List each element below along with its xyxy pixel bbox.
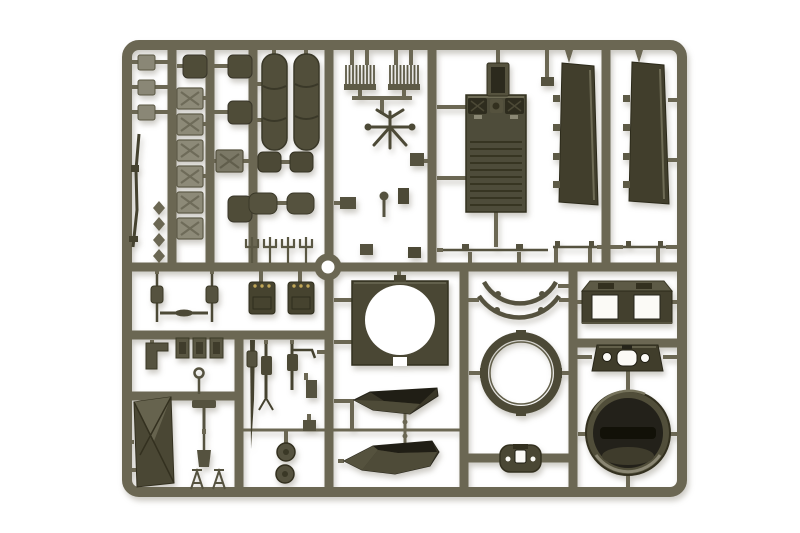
turret-ring-part: [484, 336, 558, 410]
fender-gate: [635, 50, 643, 63]
arc-nub: [494, 307, 500, 313]
runner-knob: [403, 434, 408, 439]
fender-tab: [623, 153, 630, 160]
axe-head: [192, 400, 216, 408]
clip-part: [153, 201, 165, 215]
pin-part: [195, 369, 204, 378]
rod-bracket: [516, 244, 523, 251]
fender-tab: [553, 181, 560, 188]
radio-contact: [299, 284, 302, 287]
comb-grille-teeth: [390, 65, 418, 85]
duffel-bag: [294, 54, 319, 150]
radio-contact: [292, 284, 295, 287]
arc-nub: [495, 291, 501, 297]
ring-tab: [516, 330, 526, 337]
radio-contact: [306, 284, 309, 287]
fender-tab: [553, 153, 560, 160]
stowage-bag: [183, 55, 207, 78]
tool-grip: [151, 286, 163, 303]
arc-nub: [539, 291, 545, 297]
arc-nub: [538, 307, 544, 313]
small-box-part: [138, 105, 155, 120]
mount-notch: [513, 444, 528, 449]
stowage-bag: [228, 55, 252, 78]
fork-tool: [299, 237, 313, 263]
deck-intake-face: [491, 67, 505, 93]
plate-hole: [365, 285, 435, 355]
small-part: [398, 188, 409, 204]
fender-tab: [553, 95, 560, 102]
fork-tool: [281, 237, 295, 263]
rifle-part: [133, 134, 139, 247]
mantlet-slot: [617, 350, 637, 366]
ring-tab: [480, 368, 487, 378]
radio-contact: [267, 284, 270, 287]
mantlet-hole: [641, 354, 650, 363]
small-part: [541, 77, 554, 86]
mount-hole-small: [531, 457, 536, 462]
clip-part: [153, 217, 165, 231]
fender-gate: [565, 50, 573, 63]
rod-bracket: [658, 241, 663, 248]
cupola-band: [600, 427, 656, 439]
fender-tab: [623, 124, 630, 131]
deck-tab: [510, 115, 518, 119]
cupola-floor: [602, 447, 654, 465]
small-part-face: [179, 342, 186, 354]
plate-notch: [393, 357, 407, 366]
sprue-hub-ring: [318, 257, 338, 277]
fender-tab: [553, 124, 560, 131]
sprue-svg: [0, 0, 800, 533]
deck-tab: [474, 115, 482, 119]
mount-hole-small: [506, 457, 511, 462]
wheel-hub: [283, 449, 289, 455]
pouch-part: [258, 152, 281, 172]
lamp-part: [380, 192, 389, 201]
stowage-bag: [228, 196, 252, 222]
radio-contact: [260, 284, 263, 287]
small-box-part: [138, 55, 155, 70]
ring-tab: [555, 368, 562, 378]
rifle-magazine: [131, 165, 139, 172]
stand-part: [213, 470, 225, 489]
pouch-part: [287, 193, 314, 214]
stowage-bag: [228, 101, 252, 124]
plate-tab: [394, 275, 406, 282]
bayonet-grip: [247, 351, 257, 367]
mantlet-notch: [622, 345, 632, 349]
mantlet-hole: [603, 353, 612, 362]
fender-tab: [623, 181, 630, 188]
tool-grip: [206, 286, 218, 303]
comb-grille-base: [388, 84, 420, 90]
sprue-parts-layer: [127, 45, 682, 492]
comb-grille-teeth: [346, 65, 374, 85]
shovel-blade: [197, 450, 211, 467]
small-part-face: [213, 342, 220, 354]
spring-arc: [479, 296, 559, 317]
sprue-photo: [0, 0, 800, 533]
gun-receiver: [261, 356, 272, 375]
gun-receiver: [287, 354, 298, 371]
mount-hole: [515, 450, 526, 463]
rod-bracket: [555, 241, 560, 248]
small-part: [410, 153, 424, 166]
duffel-bag: [262, 54, 287, 150]
ring-groove: [490, 342, 552, 404]
pouch-part: [249, 193, 277, 214]
ring-tab: [516, 409, 526, 416]
fork-tool: [263, 237, 277, 263]
hull-box-top: [582, 281, 672, 291]
small-part: [306, 380, 317, 398]
jack-foot: [409, 124, 416, 131]
rod-bracket: [626, 241, 631, 248]
small-part: [408, 247, 421, 258]
radio-contact: [253, 284, 256, 287]
jack-foot: [365, 124, 372, 131]
stand-part: [191, 470, 203, 489]
clip-part: [153, 249, 165, 263]
rod-bracket: [589, 241, 594, 248]
clip-part: [153, 233, 165, 247]
wrench-bulge: [175, 310, 193, 317]
spring-arc: [484, 282, 556, 303]
wheel-hub: [282, 471, 288, 477]
deck-cap-hole: [493, 103, 500, 110]
pouch-part: [290, 152, 313, 172]
small-part: [303, 420, 316, 431]
gun-bipod: [259, 398, 273, 410]
box-detail: [598, 283, 614, 289]
runner-knob: [403, 420, 408, 425]
periscope-part: [146, 343, 168, 369]
box-detail: [636, 283, 652, 289]
fender-tab: [623, 95, 630, 102]
jack-part: [368, 110, 412, 148]
box-opening: [592, 295, 618, 319]
comb-grille-base: [344, 84, 376, 90]
box-opening: [634, 295, 660, 319]
rifle-stock: [129, 236, 138, 242]
small-part: [360, 244, 373, 255]
small-box-part: [138, 80, 155, 95]
small-part-face: [196, 342, 203, 354]
small-part: [340, 197, 356, 209]
rod-bracket: [462, 244, 469, 251]
